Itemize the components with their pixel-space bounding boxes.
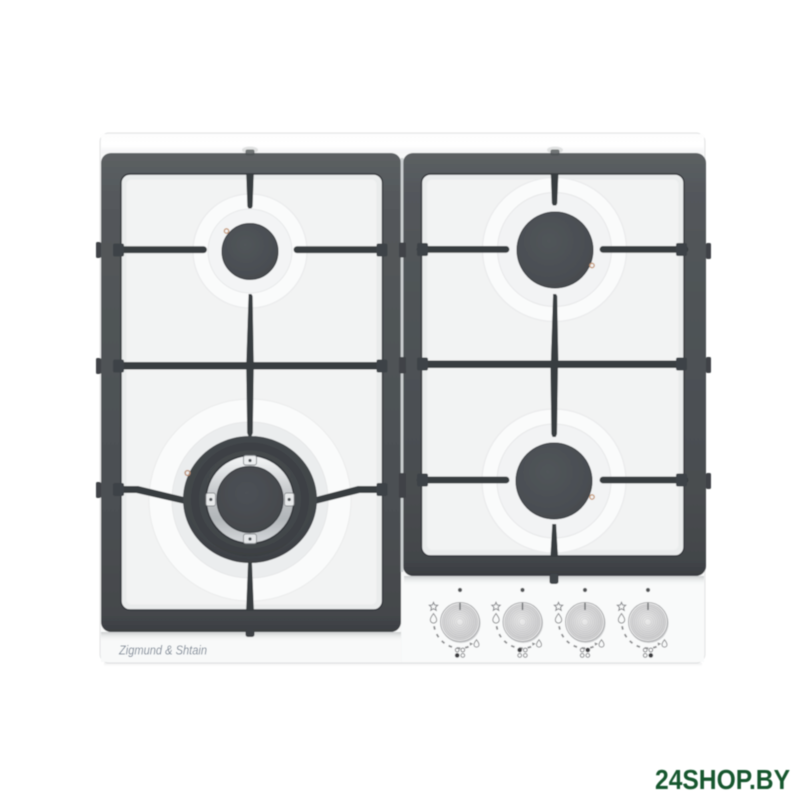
svg-text:Zigmund & Shtain: Zigmund & Shtain <box>118 643 207 658</box>
svg-text:24SHOP.BY: 24SHOP.BY <box>655 764 790 795</box>
